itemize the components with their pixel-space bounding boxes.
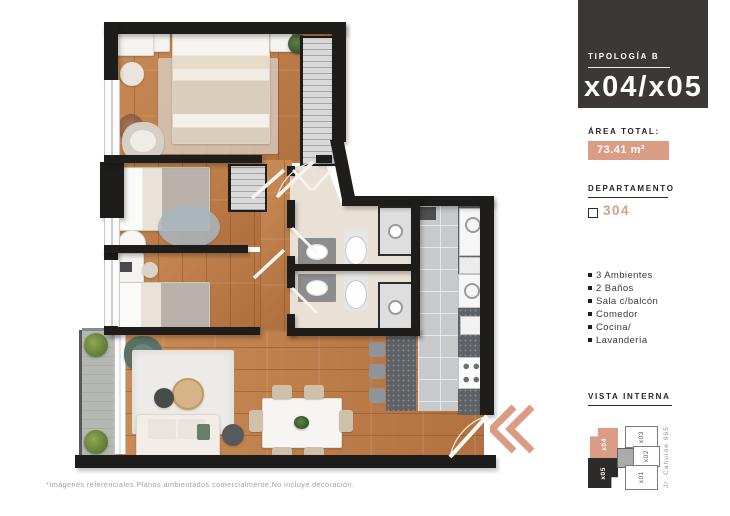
tipologia-underline <box>588 67 670 68</box>
minimap-unit-x03-label: x03 <box>638 431 645 443</box>
wall-bath-bottom <box>287 328 420 336</box>
dining-chair <box>272 385 292 399</box>
bullet-icon <box>588 312 592 316</box>
bathroom1-toilet <box>344 228 368 266</box>
wall-left-pier <box>100 162 124 218</box>
wall-master-right <box>332 22 346 142</box>
departamento-checkbox <box>588 208 598 218</box>
bedroom3-bed <box>116 282 210 330</box>
bathroom2-toilet <box>344 272 368 310</box>
master-dresser <box>116 32 154 56</box>
vestibule-floor <box>290 166 342 206</box>
minimap-unit-x05-label: x05 <box>600 467 607 480</box>
entrance-chevron-icon <box>490 404 536 454</box>
wall-bed2-bed3 <box>104 245 248 253</box>
master-bed <box>172 30 270 144</box>
bullet-icon <box>588 299 592 303</box>
wall-master-bottom <box>104 155 262 163</box>
balcony-railing <box>79 330 82 456</box>
coffee-table <box>172 378 204 410</box>
kitchen-cabinet <box>420 207 436 220</box>
bathroom2-vanity <box>298 274 336 302</box>
sofa-pillow-green <box>197 424 210 440</box>
wall-master-bottom-stub <box>316 155 332 163</box>
window <box>104 218 120 248</box>
kitchen-sink <box>460 316 482 335</box>
feature-item: Sala c/balcón <box>588 296 658 309</box>
wall-bath-kitchen <box>411 196 420 335</box>
footnote: *Imágenes referenciales.Planos ambientad… <box>46 480 354 489</box>
coffee-table-small <box>154 388 174 408</box>
vista-interna-underline <box>588 405 672 406</box>
minimap-unit-x03: x03 <box>625 426 658 448</box>
tipologia-block: TIPOLOGÍA B x04/x05 <box>578 0 708 108</box>
window <box>104 80 120 162</box>
feature-list: 3 Ambientes 2 Baños Sala c/balcón Comedo… <box>588 270 658 347</box>
feature-item: Lavandería <box>588 335 658 348</box>
counter-stool <box>369 388 385 403</box>
minimap-unit-x02: x02 <box>633 446 660 467</box>
minimap-unit-x02-label: x02 <box>643 450 650 462</box>
bathroom1-vanity <box>298 238 336 266</box>
page: *Imágenes referenciales.Planos ambientad… <box>0 0 730 516</box>
kitchen-counter-left <box>386 333 416 411</box>
departamento-label: DEPARTAMENTO <box>588 184 675 193</box>
area-total-label: ÁREA TOTAL: <box>588 127 660 136</box>
dining-chair <box>249 410 263 432</box>
dining-centerpiece <box>294 416 309 429</box>
bullet-icon <box>588 338 592 342</box>
bedroom3-laptop <box>118 262 132 272</box>
wall-bath-left-b <box>287 256 295 288</box>
street-label: Jr. Cahuide 965 <box>663 420 670 494</box>
floorplan <box>0 0 580 516</box>
departamento-underline <box>588 197 668 198</box>
bedroom2-closet <box>228 164 267 212</box>
feature-item: 3 Ambientes <box>588 270 658 283</box>
counter-stool <box>369 364 385 379</box>
balcony-plant-bottom <box>84 430 108 454</box>
master-pouf <box>120 62 144 86</box>
wall-bath-divider <box>287 264 415 271</box>
feature-item: Comedor <box>588 309 658 322</box>
master-armchair-cushion <box>130 130 156 152</box>
departamento-number: 304 <box>603 203 630 218</box>
minimap-unit-x01: x01 <box>625 465 658 490</box>
tipologia-units: x04/x05 <box>584 71 703 104</box>
bullet-icon <box>588 325 592 329</box>
side-table <box>222 424 244 446</box>
minimap-unit-x04-label: x04 <box>601 438 608 451</box>
wall-left-a <box>104 22 118 80</box>
tipologia-label: TIPOLOGÍA B <box>588 52 660 61</box>
balcony-plant-top <box>84 333 108 357</box>
wall-kitchen-right <box>480 196 494 415</box>
dining-chair <box>339 410 353 432</box>
vista-interna-label: VISTA INTERNA <box>588 392 671 401</box>
window <box>104 260 120 330</box>
bedroom2-rug <box>158 206 220 248</box>
minimap-unit-x05: x05 <box>588 458 618 488</box>
bullet-icon <box>588 273 592 277</box>
wall-bed3-living <box>110 327 260 335</box>
wall-bottom <box>75 455 496 468</box>
wall-vestibule-stub <box>287 166 295 176</box>
counter-stool <box>369 342 385 357</box>
minimap-unit-x01-label: x01 <box>638 471 645 483</box>
sofa-cushion-left <box>148 419 176 439</box>
minimap-unit-x04: x04 <box>590 428 618 460</box>
feature-item: 2 Baños <box>588 283 658 296</box>
dining-chair <box>304 385 324 399</box>
area-total-value: 73.41 m² <box>588 141 669 160</box>
wall-top <box>104 22 346 34</box>
bullet-icon <box>588 286 592 290</box>
bedroom3-chair <box>142 262 158 278</box>
wall-bath-left-a <box>287 200 295 228</box>
feature-item: Cocina/ <box>588 322 658 335</box>
